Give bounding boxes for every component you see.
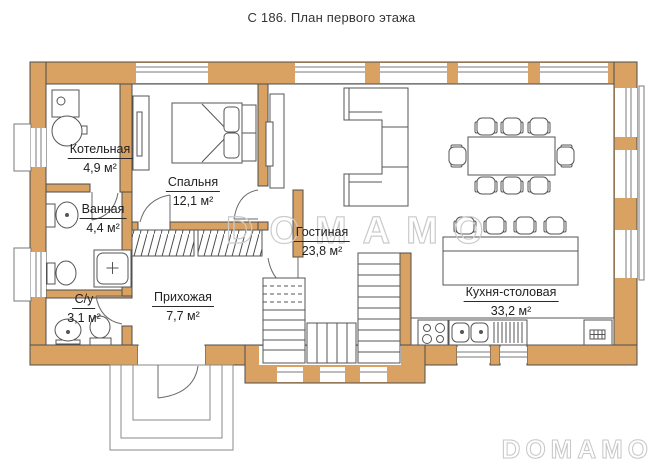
window-right-sill (639, 86, 644, 280)
bed (172, 103, 242, 163)
floor-plan: С 186. План первого этажа (0, 0, 663, 470)
room-area: 4,9 м² (68, 160, 133, 176)
bedroom-wardrobe (133, 96, 149, 170)
room-label-boiler: Котельная 4,9 м² (68, 141, 133, 177)
toilet-bathroom (47, 261, 76, 285)
sofa (344, 88, 408, 206)
kitchen-sink (449, 320, 527, 345)
room-name: Ванная (80, 201, 127, 219)
watermark-center: DOMAMO (226, 210, 499, 253)
window-top-1 (136, 63, 208, 83)
room-area: 23,8 м² (294, 243, 350, 259)
window-bay-3 (360, 367, 387, 382)
window-bottom-1 (457, 347, 490, 363)
room-name: С/у (73, 291, 96, 309)
window-left-1 (14, 124, 46, 171)
room-area: 7,7 м² (152, 308, 214, 324)
dishwasher (584, 320, 612, 345)
stair-flight-left (263, 278, 305, 363)
washbasin (46, 202, 78, 228)
tv-stand (266, 94, 284, 188)
room-name: Спальня (166, 174, 220, 192)
room-area: 33,2 м² (464, 303, 559, 319)
room-area: 12,1 м² (166, 193, 220, 209)
entrance-door (158, 365, 198, 398)
window-top-3 (380, 63, 447, 83)
entrance-porch (110, 365, 233, 450)
room-name: Котельная (68, 141, 133, 159)
room-label-bedroom: Спальня 12,1 м² (166, 174, 220, 210)
window-left-2 (14, 248, 46, 301)
window-bottom-2 (500, 347, 527, 363)
window-bay-1 (277, 367, 303, 382)
room-name: Прихожая (152, 289, 214, 307)
window-right-1 (615, 88, 637, 137)
room-name: Кухня-столовая (464, 284, 559, 302)
window-top-2 (295, 63, 365, 83)
wardrobe-hatched-1 (132, 230, 194, 256)
window-bay-2 (320, 367, 345, 382)
room-area: 3,1 м² (67, 310, 101, 326)
window-right-3 (615, 230, 637, 278)
stove (418, 320, 448, 345)
boiler (52, 90, 79, 117)
dining-table (468, 137, 555, 175)
room-label-wc: С/у 3,1 м² (67, 291, 101, 327)
room-area: 4,4 м² (80, 220, 127, 236)
stair-landing (307, 323, 356, 363)
stair-flight-right (358, 253, 400, 363)
room-name: Гостиная (294, 224, 350, 242)
shower-cabin (94, 250, 131, 287)
room-label-hallway: Прихожая 7,7 м² (152, 289, 214, 325)
window-top-4 (458, 63, 528, 83)
window-top-5 (540, 63, 608, 83)
room-label-living: Гостиная 23,8 м² (294, 224, 350, 260)
room-label-bathroom: Ванная 4,4 м² (80, 201, 127, 237)
staircase (263, 253, 400, 363)
watermark-corner: DOMAMO (502, 434, 653, 465)
nightstand-shelves (242, 105, 256, 161)
room-label-kitchen: Кухня-столовая 33,2 м² (464, 284, 559, 320)
window-right-2 (615, 150, 637, 198)
